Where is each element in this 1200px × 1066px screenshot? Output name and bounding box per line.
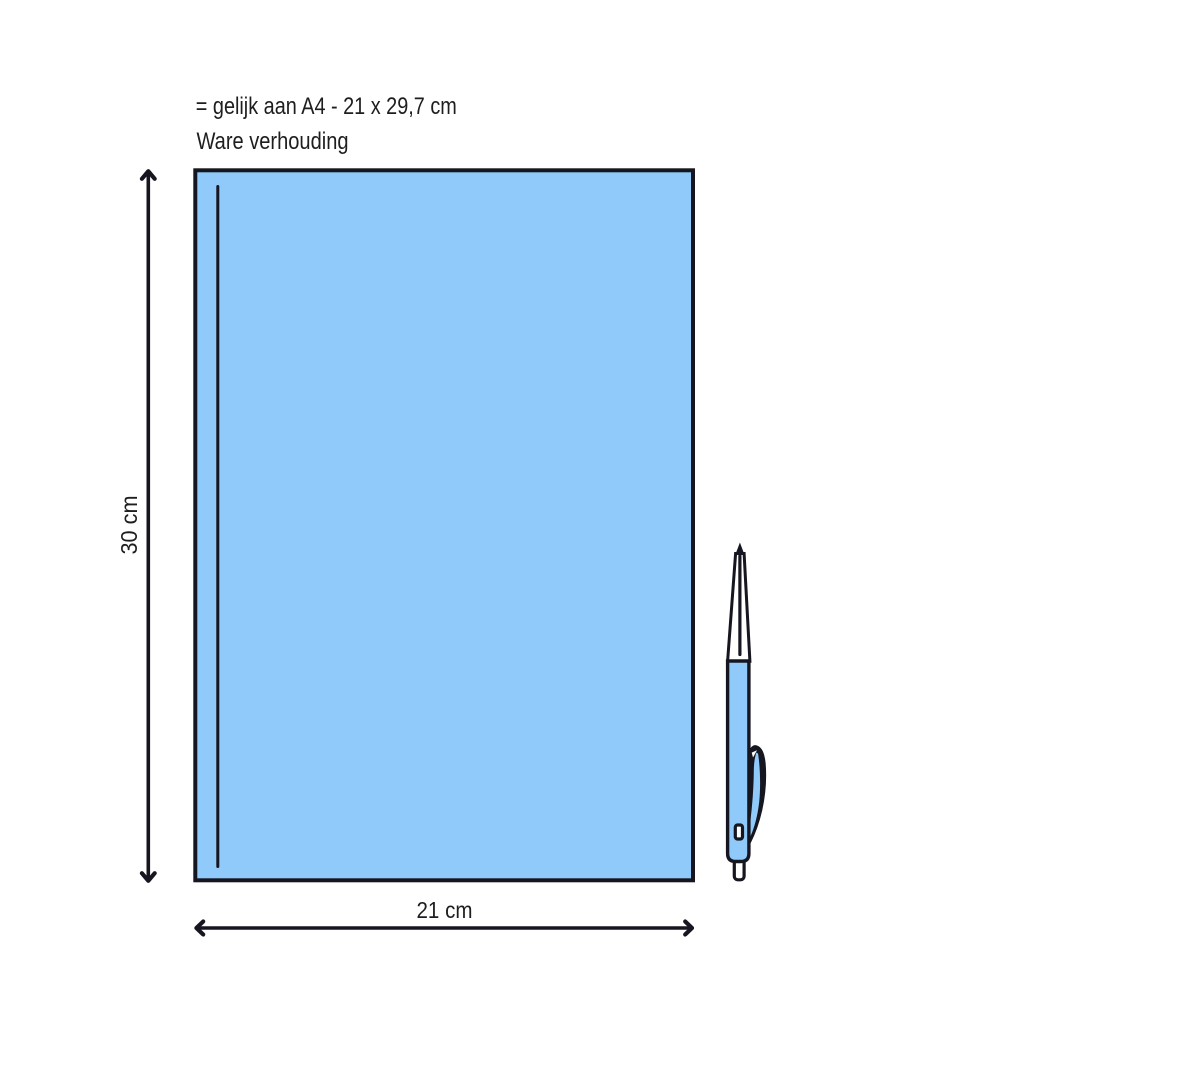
svg-text:21 cm: 21 cm: [417, 897, 473, 923]
svg-text:30 cm: 30 cm: [116, 496, 142, 555]
svg-text:Ware verhouding: Ware verhouding: [197, 128, 349, 155]
svg-text:= gelijk aan A4 - 21 x 29,7 cm: = gelijk aan A4 - 21 x 29,7 cm: [196, 93, 457, 120]
